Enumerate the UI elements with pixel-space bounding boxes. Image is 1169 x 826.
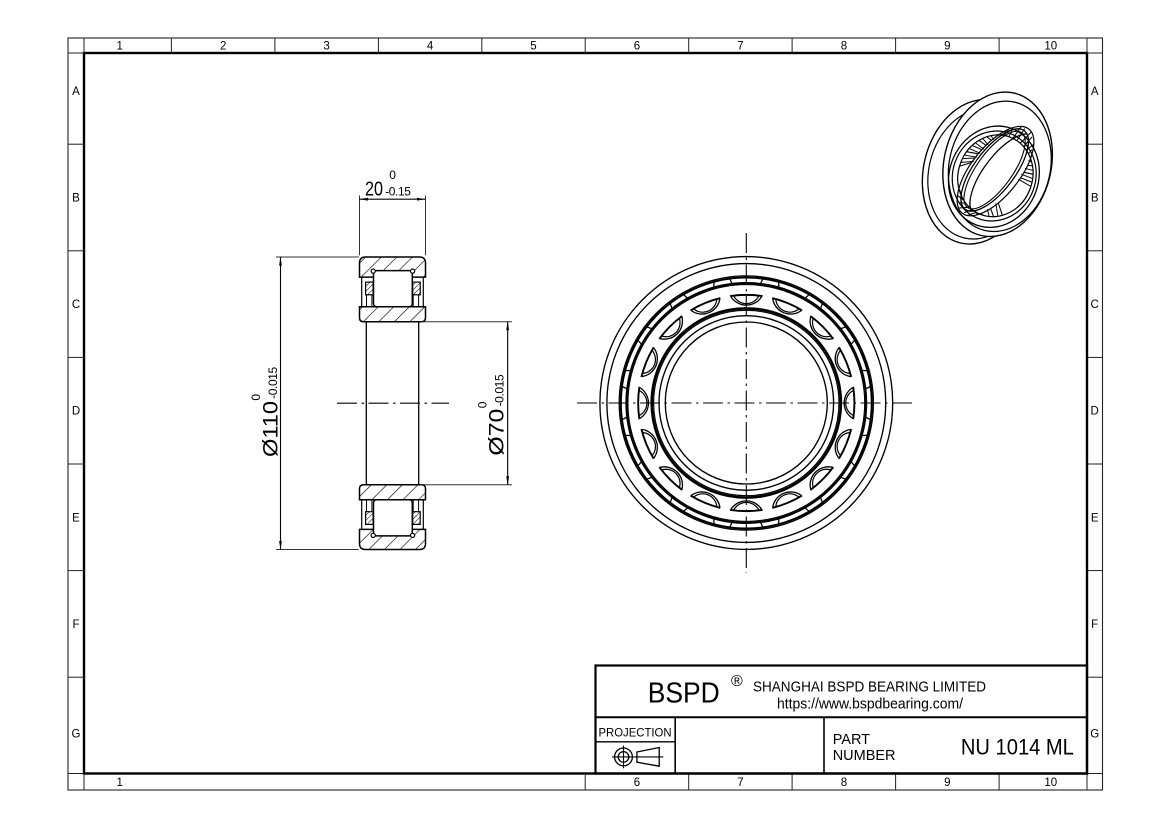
svg-text:-0.015: -0.015 [266, 366, 280, 398]
svg-text:2: 2 [220, 41, 226, 53]
svg-text:D: D [72, 406, 80, 418]
svg-text:8: 8 [841, 41, 847, 53]
svg-text:3: 3 [323, 41, 329, 53]
svg-text:PROJECTION: PROJECTION [599, 726, 672, 740]
svg-text:10: 10 [1044, 777, 1057, 789]
svg-text:https://www.bspdbearing.com/: https://www.bspdbearing.com/ [777, 696, 964, 713]
svg-text:9: 9 [944, 777, 950, 789]
svg-text:8: 8 [841, 777, 847, 789]
svg-text:5: 5 [530, 41, 536, 53]
svg-text:Ø110: Ø110 [259, 401, 282, 457]
svg-text:F: F [72, 619, 79, 631]
svg-text:1: 1 [116, 777, 122, 789]
svg-text:6: 6 [634, 777, 640, 789]
svg-text:0: 0 [389, 168, 396, 182]
svg-text:NUMBER: NUMBER [833, 748, 896, 764]
svg-text:7: 7 [737, 41, 743, 53]
svg-text:4: 4 [427, 41, 434, 53]
svg-text:®: ® [731, 673, 743, 690]
svg-text:BSPD: BSPD [648, 677, 720, 709]
svg-text:G: G [72, 729, 81, 741]
svg-text:A: A [72, 86, 80, 98]
svg-text:7: 7 [737, 777, 743, 789]
svg-text:G: G [1090, 729, 1099, 741]
svg-text:Ø70: Ø70 [486, 409, 509, 456]
svg-text:E: E [72, 512, 80, 524]
svg-text:10: 10 [1044, 41, 1057, 53]
svg-text:-0.015: -0.015 [492, 374, 506, 406]
svg-text:20: 20 [365, 178, 383, 201]
svg-text:9: 9 [944, 41, 950, 53]
svg-text:-0.15: -0.15 [385, 184, 411, 198]
svg-text:C: C [1091, 299, 1099, 311]
svg-text:0: 0 [249, 394, 263, 401]
svg-text:NU 1014 ML: NU 1014 ML [961, 734, 1074, 759]
svg-text:6: 6 [634, 41, 640, 53]
svg-text:1: 1 [116, 41, 122, 53]
svg-text:D: D [1091, 406, 1099, 418]
svg-text:C: C [72, 299, 80, 311]
svg-text:B: B [72, 193, 80, 205]
svg-text:B: B [1091, 193, 1099, 205]
svg-text:E: E [1091, 512, 1099, 524]
svg-text:A: A [1091, 86, 1099, 98]
svg-text:SHANGHAI BSPD BEARING LIMITED: SHANGHAI BSPD BEARING LIMITED [753, 679, 986, 696]
svg-text:F: F [1091, 619, 1098, 631]
svg-text:PART: PART [833, 732, 870, 748]
svg-text:0: 0 [475, 401, 489, 408]
